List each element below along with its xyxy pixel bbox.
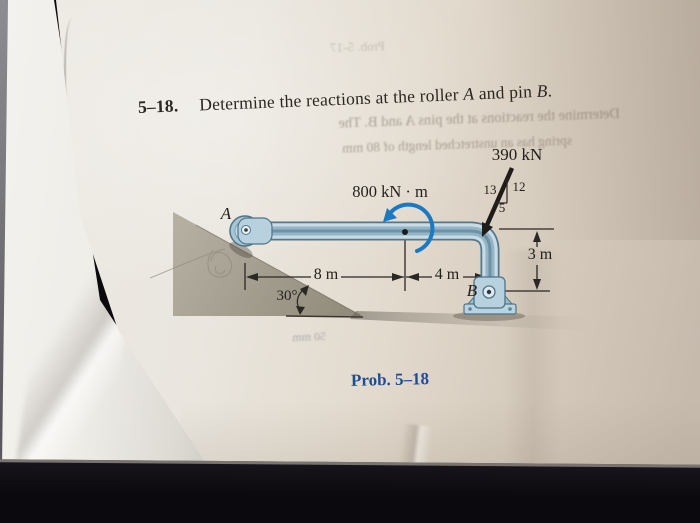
moment-point-dot <box>402 229 408 235</box>
incline-angle-label: 30° <box>268 289 306 305</box>
force-magnitude-label: 390 kN <box>481 146 553 164</box>
slope-horizontal-label: 5 <box>492 201 512 215</box>
ground-line <box>286 316 363 317</box>
photo-scene: Determine the reactions at the pins A an… <box>0 0 700 523</box>
dimension-8m-label: 8 m <box>306 267 346 284</box>
figure-caption: Prob. 5–18 <box>310 368 470 392</box>
slope-hypotenuse-label: 13 <box>479 183 501 197</box>
moment-magnitude-label: 800 kN · m <box>334 183 446 200</box>
dimension-3m-label: 3 m <box>520 247 560 264</box>
point-label-b: B <box>460 282 484 300</box>
point-label-a: A <box>214 205 238 223</box>
slope-vertical-label: 12 <box>508 180 530 194</box>
dimension-4m-label: 4 m <box>427 267 467 284</box>
desk-surface <box>0 459 700 523</box>
